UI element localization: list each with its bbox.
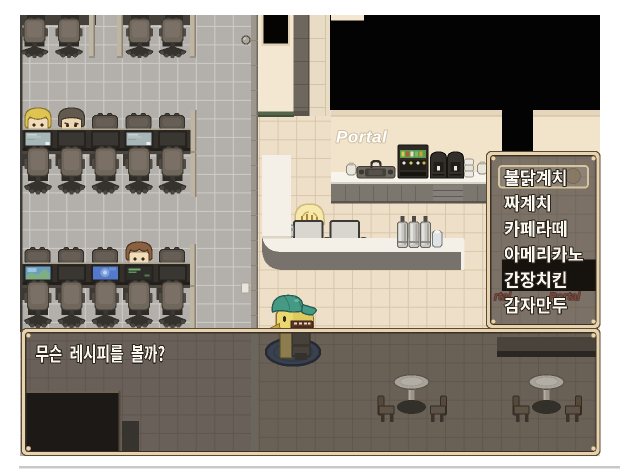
svg-text:Portal: Portal (336, 128, 388, 147)
